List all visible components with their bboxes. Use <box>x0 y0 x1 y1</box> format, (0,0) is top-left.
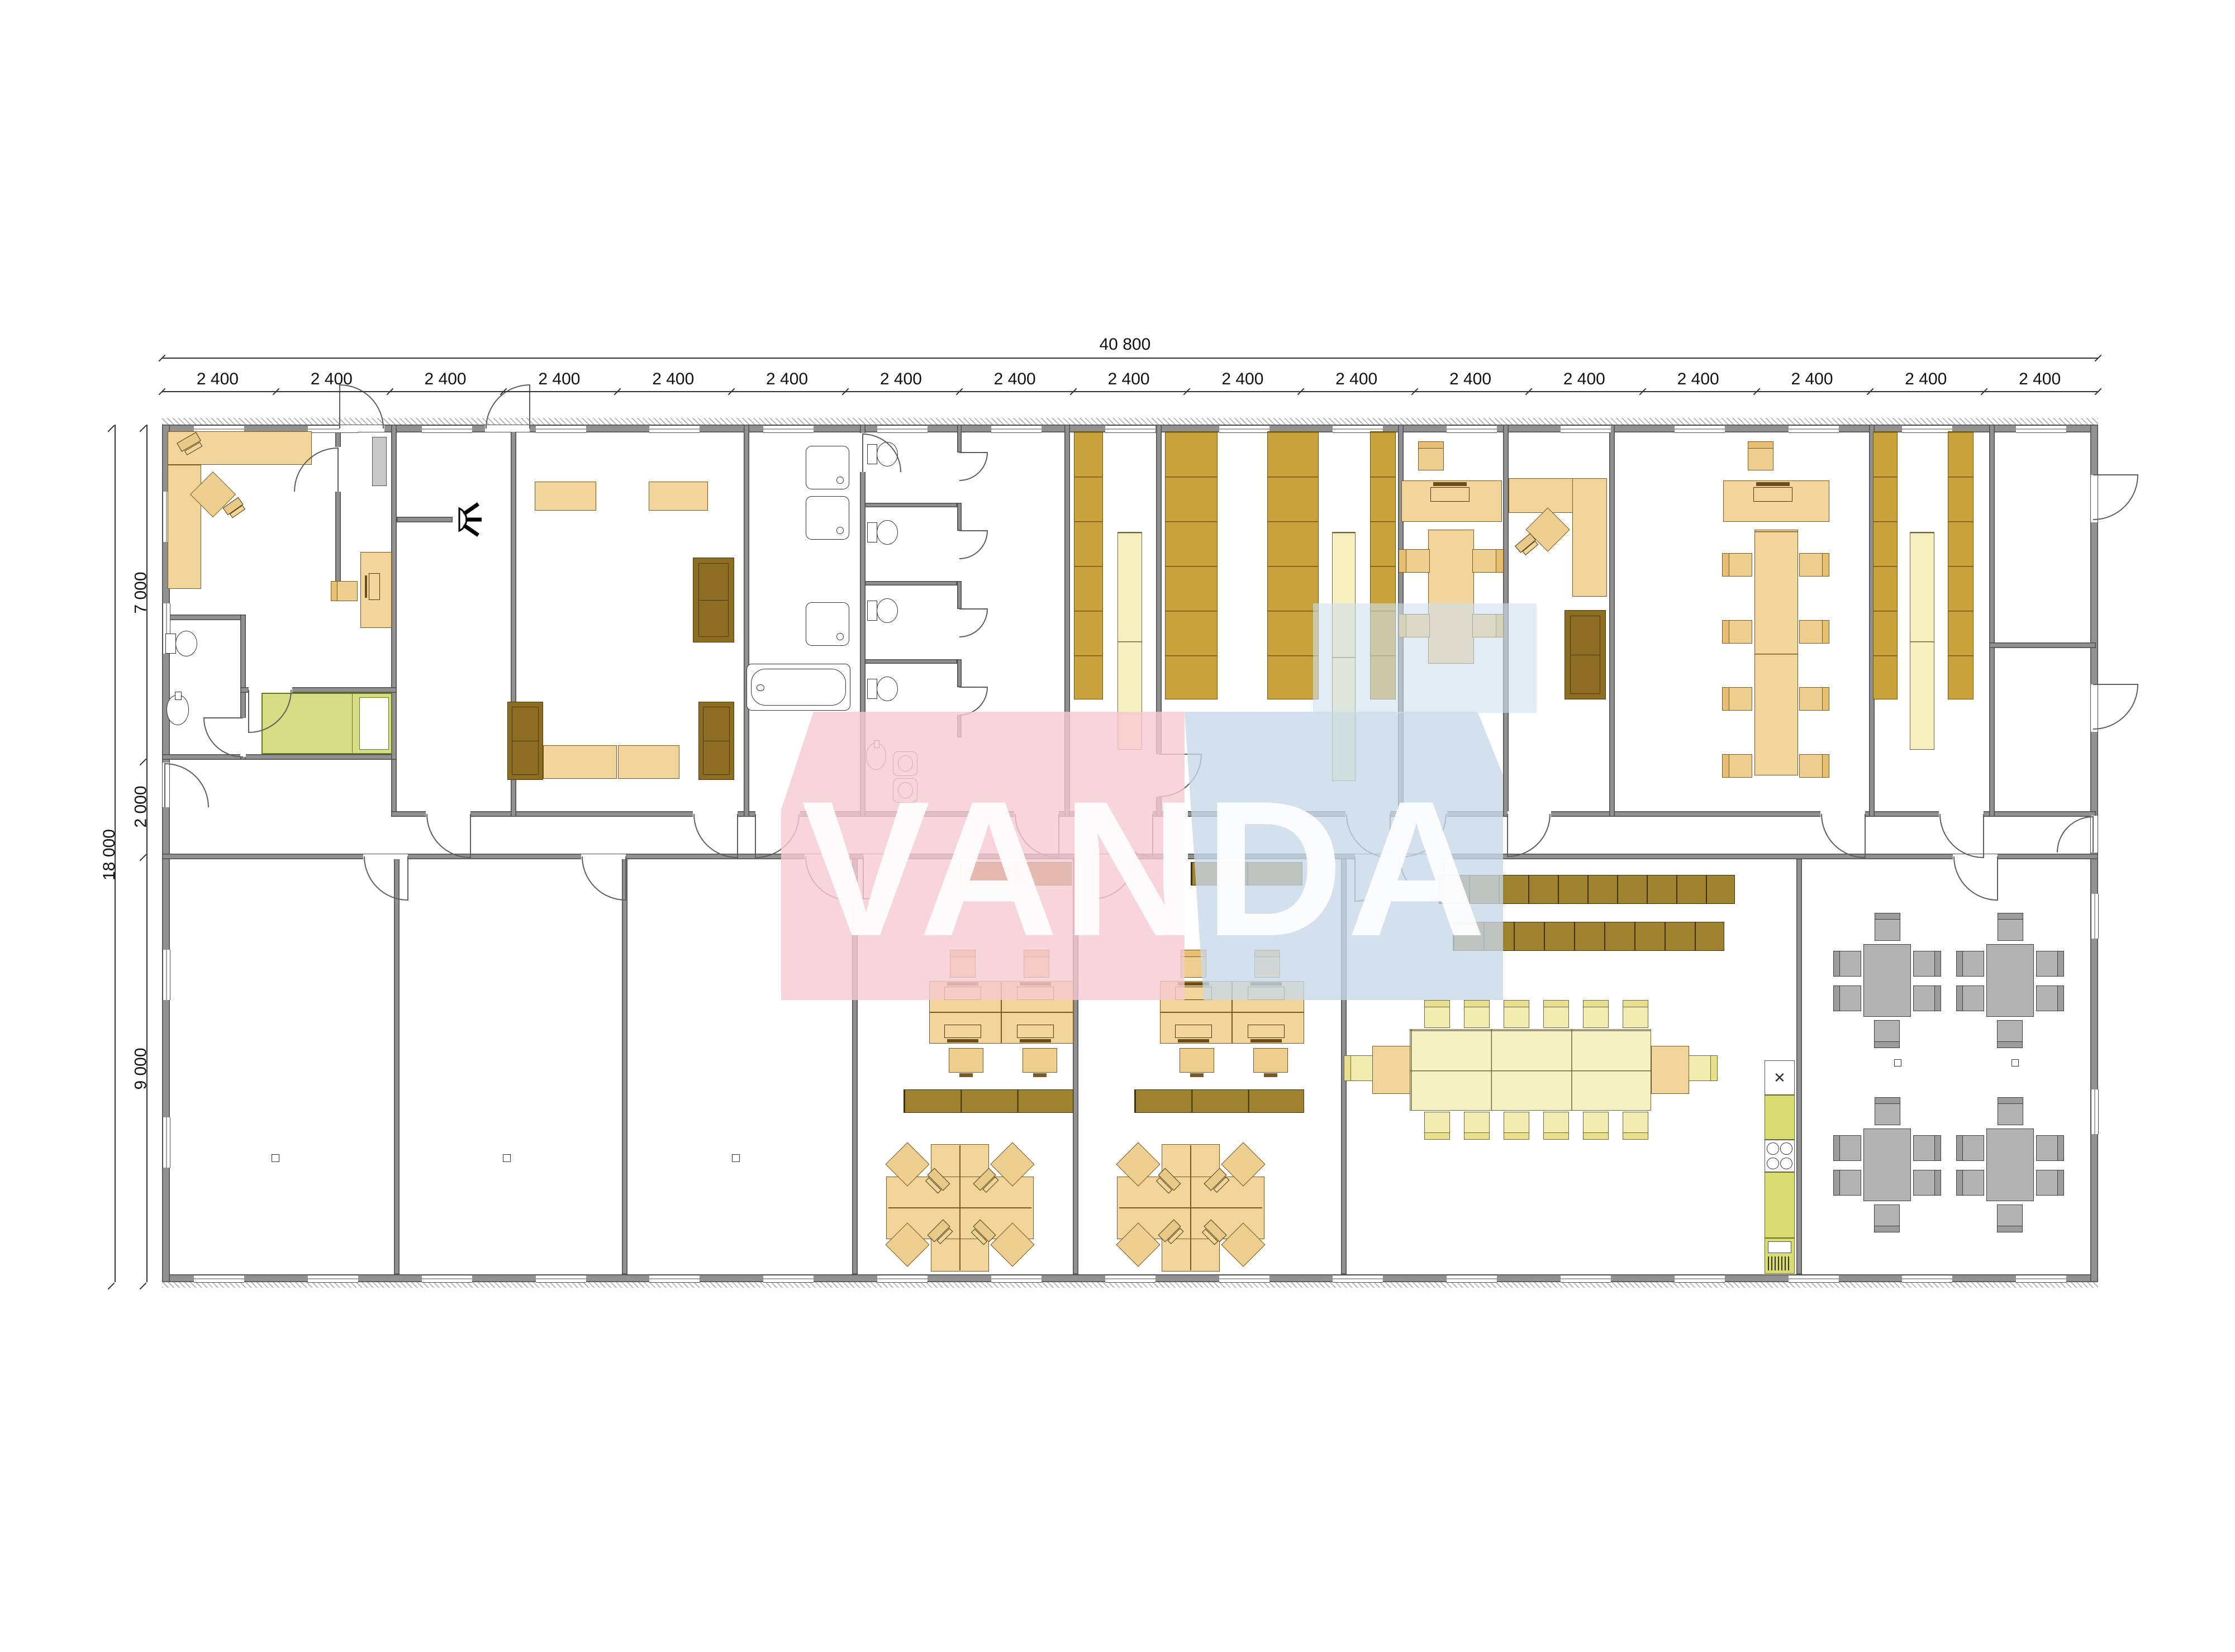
floor-plan-canvas: ✕ 40 8002 4002 4002 4002 4002 4002 4002 … <box>0 0 2235 1652</box>
dimension-segment: 2 400 <box>538 370 580 389</box>
door-arc <box>204 718 243 757</box>
dimension-segment: 2 400 <box>425 370 467 389</box>
dimension-segment: 2 400 <box>1791 370 1833 389</box>
watermark-blue-shape-small <box>1313 603 1537 713</box>
dimension-segment: 2 400 <box>311 370 353 389</box>
dimension-total-height: 18 000 <box>100 829 119 880</box>
dimension-segment: 2 400 <box>197 370 239 389</box>
dimension-segment: 2 400 <box>1108 370 1150 389</box>
dimension-segment: 2 400 <box>994 370 1036 389</box>
door-arc <box>294 448 338 492</box>
watermark-logo-text: VANDA <box>782 759 1509 980</box>
dimension-segment: 2 400 <box>2019 370 2061 389</box>
dimension-line <box>146 425 148 1282</box>
door-arc <box>582 856 626 900</box>
dimension-segment: 2 400 <box>766 370 808 389</box>
dimension-segment: 2 400 <box>1221 370 1263 389</box>
door-arc <box>1822 814 1865 858</box>
door-arc <box>1940 814 1984 858</box>
door-arc <box>427 814 470 858</box>
dimension-segment: 7 000 <box>132 572 151 613</box>
door-arc <box>364 856 408 900</box>
door-arc <box>249 690 291 732</box>
door-arc <box>1508 814 1550 856</box>
dimension-segment: 2 400 <box>1563 370 1605 389</box>
door-arc <box>2093 475 2138 520</box>
dimension-total-width: 40 800 <box>1100 335 1151 354</box>
dimension-segment: 2 400 <box>1335 370 1377 389</box>
door-arc <box>959 531 987 559</box>
dimension-segment: 2 400 <box>1449 370 1491 389</box>
dimension-segment: 9 000 <box>132 1048 151 1090</box>
dimension-segment: 2 400 <box>880 370 922 389</box>
dimension-segment: 2 400 <box>1677 370 1719 389</box>
door-arc <box>863 434 901 472</box>
dimension-segment: 2 400 <box>1905 370 1947 389</box>
dimension-line <box>162 391 2098 392</box>
door-arc <box>2057 817 2093 853</box>
door-arc <box>1954 856 1998 900</box>
door-arc <box>2093 684 2138 729</box>
door-arc <box>694 814 738 858</box>
door-arc <box>959 453 987 480</box>
dimension-segment: 2 400 <box>652 370 694 389</box>
door-arc <box>959 687 987 715</box>
dimension-line <box>162 358 2098 359</box>
door-arc <box>959 609 987 637</box>
dimension-segment: 2 000 <box>132 786 151 828</box>
door-arc <box>165 764 208 807</box>
